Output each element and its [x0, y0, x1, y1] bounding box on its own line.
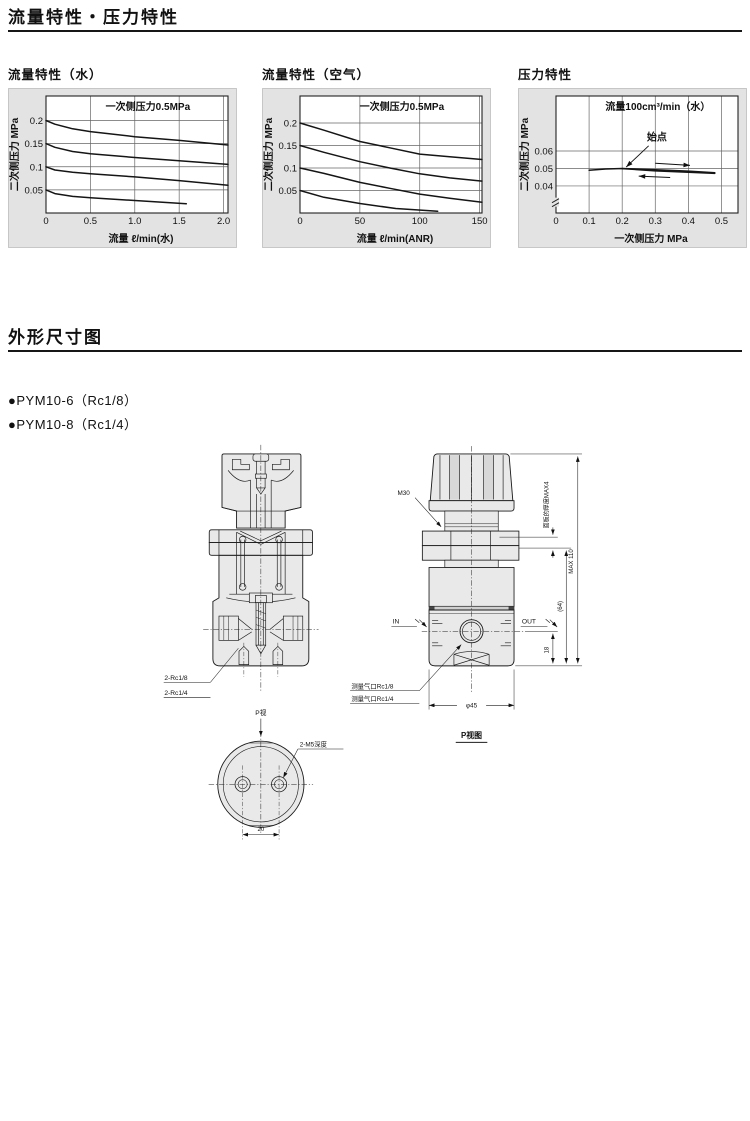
dim-panel-thickness-label: 面板的厚度MAX4 [543, 481, 551, 528]
left-cross-section-view: 2-Rc1/8 2-Rc1/4 [164, 445, 319, 698]
gauge-port-label-1: 测量气口Rc1/8 [351, 681, 394, 690]
svg-text:0.2: 0.2 [616, 216, 629, 227]
svg-text:2.0: 2.0 [217, 216, 230, 227]
svg-text:一次侧压力 MPa: 一次侧压力 MPa [614, 232, 688, 245]
m30-thread-label: M30 [397, 490, 410, 497]
chart-water-canvas: 00.51.01.52.00.050.10.150.2一次侧压力0.5MPa流量… [8, 88, 237, 248]
svg-text:0.4: 0.4 [682, 216, 695, 227]
svg-text:0.2: 0.2 [30, 116, 43, 127]
pview-direction-label: P视 [255, 708, 266, 717]
svg-text:50: 50 [355, 216, 366, 227]
svg-text:0.3: 0.3 [649, 216, 662, 227]
svg-text:0.04: 0.04 [535, 181, 554, 192]
svg-text:150: 150 [472, 216, 488, 227]
svg-text:0.15: 0.15 [279, 141, 298, 152]
svg-text:1.5: 1.5 [173, 216, 186, 227]
svg-text:0.05: 0.05 [25, 185, 44, 196]
section-title-characteristics: 流量特性・压力特性 [8, 3, 179, 28]
svg-text:0.05: 0.05 [535, 164, 554, 175]
outlet-flow-arrow [550, 620, 557, 627]
dimension-drawing: 2-Rc1/8 2-Rc1/4 20 P视 2-M5深度 [0, 440, 750, 1120]
outlet-label: OUT [522, 618, 536, 625]
dim-20-label: 20 [257, 827, 264, 833]
svg-text:0.1: 0.1 [30, 162, 43, 173]
svg-text:0.05: 0.05 [279, 186, 298, 197]
section-rule-1 [8, 30, 742, 32]
chart-air-canvas: 0501001500.050.10.150.2一次侧压力0.5MPa流量 ℓ/m… [262, 88, 491, 248]
dim-dia45-label: φ45 [466, 703, 478, 710]
inlet-flow-arrow [419, 620, 426, 627]
dim-18-label: 18 [545, 646, 551, 653]
svg-text:1.0: 1.0 [128, 216, 141, 227]
bottom-p-view: 20 P视 2-M5深度 [209, 708, 344, 839]
right-external-view: IN OUT M30 测量气口Rc1/8 测量气口Rc1/4 MAX 110 [350, 446, 582, 742]
svg-text:0: 0 [297, 216, 302, 227]
model-item-pym10-6: ●PYM10-6（Rc1/8） [8, 390, 138, 409]
page-title: 流量特性・压力特性 [8, 3, 179, 28]
model-item-pym10-8: ●PYM10-8（Rc1/4） [8, 414, 138, 433]
svg-text:流量 ℓ/min(水): 流量 ℓ/min(水) [109, 232, 174, 245]
svg-text:0.15: 0.15 [25, 139, 44, 150]
inlet-label: IN [393, 618, 400, 625]
svg-text:0.06: 0.06 [535, 147, 554, 158]
port-size-label-1: 2-Rc1/8 [164, 675, 188, 682]
pview-title: P视图 [461, 730, 482, 740]
svg-text:二次侧压力 MPa: 二次侧压力 MPa [518, 117, 531, 191]
section-title-dimensions: 外形尺寸图 [8, 323, 103, 348]
panel-nut-1 [422, 531, 519, 546]
m5-thread-label: 2-M5深度 [300, 740, 328, 749]
svg-text:0: 0 [553, 216, 558, 227]
gauge-port-label-2: 测量气口Rc1/4 [351, 694, 394, 703]
svg-text:一次侧压力0.5MPa: 一次侧压力0.5MPa [106, 100, 191, 113]
dimensions-title: 外形尺寸图 [8, 323, 103, 348]
svg-text:二次侧压力 MPa: 二次侧压力 MPa [8, 117, 21, 191]
svg-text:流量100cm³/min（水）: 流量100cm³/min（水） [605, 100, 710, 113]
svg-text:0.5: 0.5 [84, 216, 97, 227]
dim-max110-label: MAX 110 [569, 549, 575, 574]
svg-text:二次侧压力 MPa: 二次侧压力 MPa [262, 117, 275, 191]
port-size-label-2: 2-Rc1/4 [164, 690, 188, 697]
svg-text:一次侧压力0.5MPa: 一次侧压力0.5MPa [360, 100, 445, 113]
svg-text:100: 100 [412, 216, 428, 227]
svg-text:0: 0 [43, 216, 48, 227]
svg-text:0.2: 0.2 [284, 119, 297, 130]
chart-pressure-canvas: 00.10.20.30.40.50.040.050.06流量100cm³/min… [518, 88, 747, 248]
chart-air-title: 流量特性（空气） [262, 64, 370, 83]
svg-text:0.1: 0.1 [284, 164, 297, 175]
dim-64-label: (64) [558, 601, 564, 612]
svg-text:始点: 始点 [647, 131, 667, 144]
chart-water-title: 流量特性（水） [8, 64, 103, 83]
section-rule-2 [8, 350, 742, 352]
svg-text:0.1: 0.1 [582, 216, 595, 227]
chart-pressure-title: 压力特性 [518, 64, 572, 83]
panel-nut-2 [422, 546, 519, 561]
svg-text:0.5: 0.5 [715, 216, 728, 227]
svg-text:流量 ℓ/min(ANR): 流量 ℓ/min(ANR) [357, 232, 434, 245]
